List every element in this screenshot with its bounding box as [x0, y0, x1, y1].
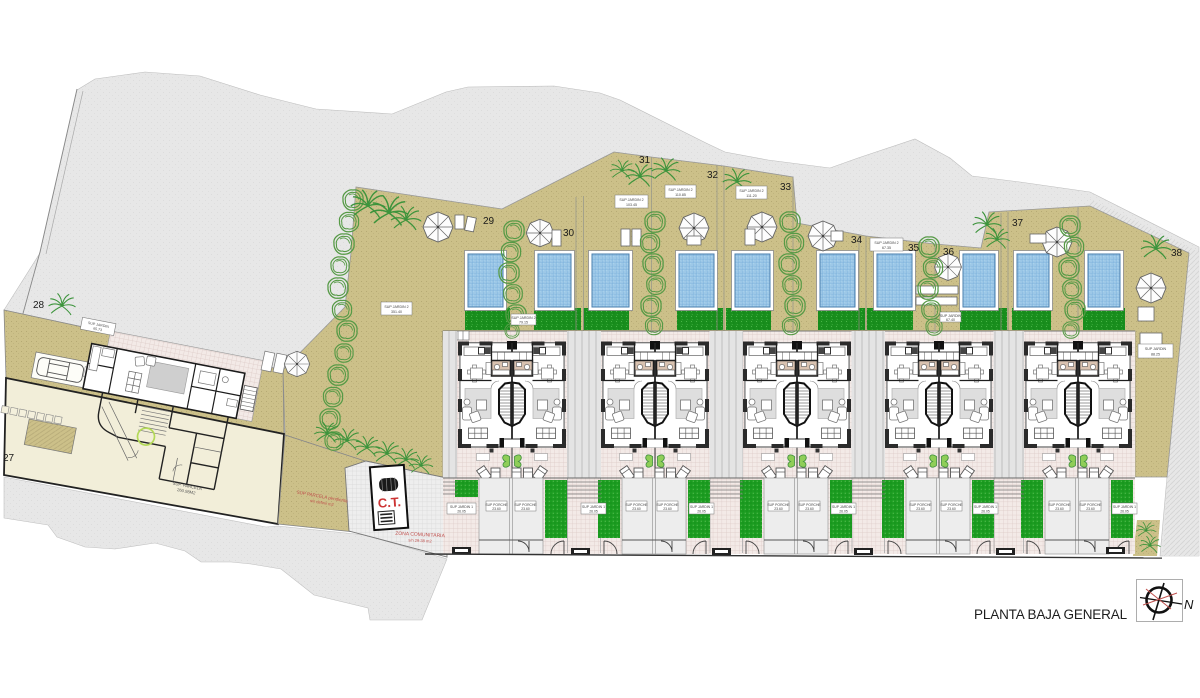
svg-text:SUP JARDIN 2: SUP JARDIN 2 [739, 189, 763, 193]
svg-text:N: N [1184, 597, 1194, 612]
svg-text:67.35: 67.35 [882, 246, 891, 250]
svg-text:34: 34 [851, 235, 863, 246]
svg-text:31: 31 [639, 155, 651, 166]
svg-text:23.60: 23.60 [632, 507, 641, 511]
svg-text:88.25: 88.25 [1151, 353, 1160, 357]
svg-text:SUP JARDIN 2: SUP JARDIN 2 [511, 316, 535, 320]
svg-text:23.60: 23.60 [774, 507, 783, 511]
svg-text:PLANTA BAJA GENERAL: PLANTA BAJA GENERAL [974, 607, 1128, 622]
svg-text:26.05: 26.05 [589, 510, 598, 514]
svg-text:35: 35 [908, 243, 920, 254]
svg-text:SUP JARDIN 1: SUP JARDIN 1 [832, 505, 855, 509]
svg-text:23.60: 23.60 [805, 507, 814, 511]
svg-text:28: 28 [33, 300, 45, 311]
svg-text:79.15: 79.15 [519, 321, 528, 325]
svg-text:SUP JARDIN 1: SUP JARDIN 1 [974, 505, 997, 509]
svg-text:26.05: 26.05 [981, 510, 990, 514]
svg-text:23.60: 23.60 [1055, 507, 1064, 511]
svg-text:30: 30 [563, 228, 575, 239]
svg-text:29: 29 [483, 216, 495, 227]
svg-text:23.60: 23.60 [492, 507, 501, 511]
svg-text:SUP JARDIN 2: SUP JARDIN 2 [619, 198, 643, 202]
svg-text:110.85: 110.85 [675, 193, 686, 197]
svg-text:27: 27 [3, 453, 15, 464]
svg-text:32: 32 [707, 170, 719, 181]
svg-text:26.05: 26.05 [839, 510, 848, 514]
svg-text:SUP JARDIN 2: SUP JARDIN 2 [874, 241, 898, 245]
svg-text:SUP JARDIN 1: SUP JARDIN 1 [690, 505, 713, 509]
svg-text:38: 38 [1171, 248, 1183, 259]
svg-text:351.40: 351.40 [391, 310, 402, 314]
svg-text:SUP JARDIN 2: SUP JARDIN 2 [668, 188, 692, 192]
svg-text:SUP JARDIN: SUP JARDIN [1145, 347, 1167, 351]
svg-text:SUP JARDIN 1: SUP JARDIN 1 [582, 505, 605, 509]
svg-text:SUP JARDIN 1: SUP JARDIN 1 [1113, 505, 1136, 509]
svg-text:26.05: 26.05 [697, 510, 706, 514]
svg-text:23.60: 23.60 [663, 507, 672, 511]
svg-text:26.05: 26.05 [457, 510, 466, 514]
svg-text:SUP JARDIN 1: SUP JARDIN 1 [450, 505, 473, 509]
svg-text:37: 37 [1012, 218, 1024, 229]
svg-text:C.T.: C.T. [377, 494, 401, 511]
svg-text:23.60: 23.60 [916, 507, 925, 511]
svg-text:36: 36 [943, 247, 955, 258]
svg-text:SUP JARDIN 2: SUP JARDIN 2 [384, 305, 408, 309]
svg-text:111.20: 111.20 [746, 194, 756, 198]
svg-text:23.60: 23.60 [521, 507, 530, 511]
svg-text:103.45: 103.45 [626, 203, 637, 207]
svg-text:33: 33 [780, 182, 792, 193]
svg-text:23.60: 23.60 [947, 507, 956, 511]
svg-text:26.05: 26.05 [1120, 510, 1129, 514]
svg-text:23.60: 23.60 [1086, 507, 1095, 511]
svg-text:67.40: 67.40 [946, 318, 955, 322]
